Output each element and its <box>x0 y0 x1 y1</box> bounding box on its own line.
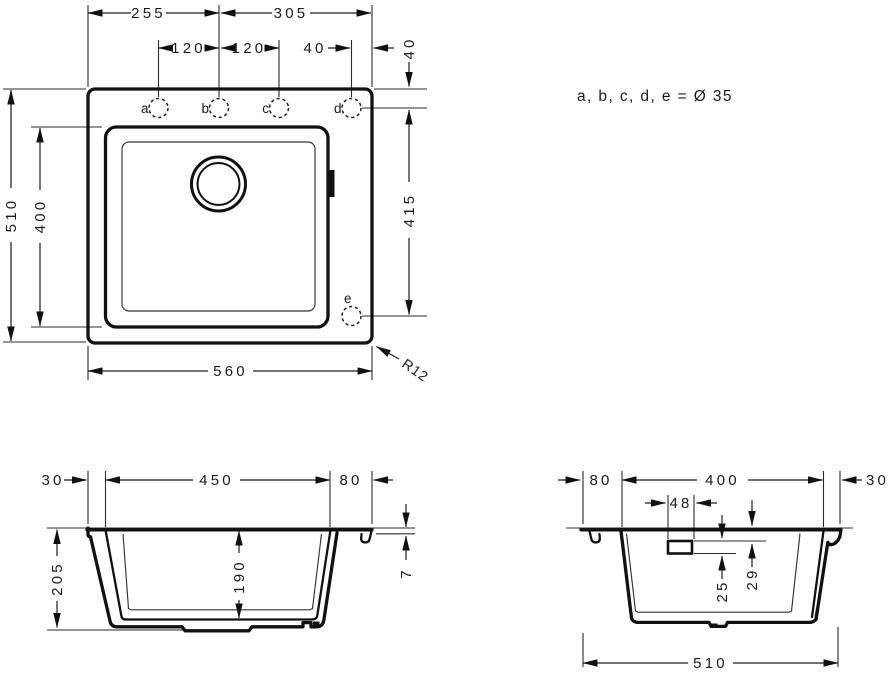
dim-label: 80 <box>339 472 362 489</box>
dim-label: 415 <box>401 193 418 228</box>
dim-label: 120 <box>171 40 206 57</box>
tap-hole-b <box>210 99 229 118</box>
bowl-bottom-edge <box>122 142 315 311</box>
extension-lines <box>566 471 853 667</box>
dim-7: 7 <box>398 504 415 579</box>
bowl-outer-profile <box>88 528 337 631</box>
extension-lines <box>3 5 427 380</box>
extension-lines <box>47 471 415 630</box>
dim-label: 400 <box>32 199 49 234</box>
dim-label: 305 <box>274 5 309 22</box>
dim-29: 29 <box>744 500 761 591</box>
leader-line <box>377 347 400 360</box>
technical-drawing-page: a b c d e 255 305 120 120 <box>0 0 893 675</box>
dim-510-section: 510 <box>583 655 838 672</box>
top-view: a b c d e 255 305 120 120 <box>3 5 432 385</box>
dim-120-bc: 120 <box>221 40 279 57</box>
side-section-view: 80 400 30 48 25 29 <box>558 471 889 672</box>
dim-label: 510 <box>3 198 20 233</box>
section-profile <box>87 528 372 631</box>
drain-stub <box>711 624 718 629</box>
radius-label: R12 <box>399 355 432 385</box>
dim-label: 80 <box>589 472 612 489</box>
tap-hole-e <box>342 307 361 326</box>
dim-80-right: 80 <box>339 472 393 489</box>
rim-edge-hook <box>590 531 600 542</box>
hole-label-e: e <box>344 291 352 306</box>
sink-dimension-drawing: a b c d e 255 305 120 120 <box>0 0 893 675</box>
bowl-inner-edge-line <box>123 534 322 610</box>
drain-stub <box>313 622 320 627</box>
dim-400: 400 <box>32 128 49 326</box>
overflow-opening <box>668 541 692 554</box>
dim-48: 48 <box>645 495 717 512</box>
dim-label: 400 <box>705 472 740 489</box>
drain-inner-circle <box>198 163 240 205</box>
dim-80-back: 80 <box>558 472 613 489</box>
bowl-inner-profile <box>106 530 331 620</box>
dim-label: 255 <box>131 5 166 22</box>
dim-400-section: 400 <box>622 472 823 489</box>
dim-label: 510 <box>693 655 728 672</box>
dim-label: 7 <box>398 567 415 579</box>
tap-hole-c <box>270 99 289 118</box>
dim-190: 190 <box>231 531 248 618</box>
hole-label-d: d <box>334 101 342 116</box>
overflow-slot <box>327 170 335 197</box>
hole-label-b: b <box>201 101 209 116</box>
dim-560: 560 <box>88 363 372 380</box>
dim-label: 560 <box>213 363 248 380</box>
dim-label: 120 <box>232 40 267 57</box>
tap-hole-a <box>149 99 168 118</box>
rim-edge-hook <box>361 531 371 542</box>
dim-label: 30 <box>866 472 889 489</box>
hole-label-a: a <box>141 101 149 116</box>
dim-120-ab: 120 <box>159 40 220 57</box>
dim-30-front: 30 <box>842 472 889 489</box>
dim-510: 510 <box>3 90 20 341</box>
dim-label: 190 <box>231 559 248 594</box>
dim-415: 415 <box>401 110 418 315</box>
dim-label: 40 <box>303 40 326 57</box>
drain-outer-circle <box>192 157 246 211</box>
section-profile <box>581 529 841 628</box>
corner-radius-callout: R12 <box>377 347 432 385</box>
dim-40-vertical: 40 <box>401 36 418 86</box>
dim-30-left: 30 <box>41 472 86 489</box>
dim-label: 40 <box>401 36 418 59</box>
dim-40-horizontal: 40 <box>303 40 394 57</box>
dim-450: 450 <box>106 472 331 489</box>
dim-305: 305 <box>221 5 371 22</box>
dim-label: 48 <box>669 495 692 512</box>
dim-label: 25 <box>714 579 731 602</box>
front-lip-profile <box>816 529 841 620</box>
dim-label: 30 <box>41 472 64 489</box>
hole-label-c: c <box>262 101 269 116</box>
dim-205: 205 <box>49 530 66 628</box>
dim-label: 450 <box>199 472 234 489</box>
tap-hole-d <box>342 99 361 118</box>
holes-diameter-note: a, b, c, d, e = Ø 35 <box>577 88 733 105</box>
front-section-view: 30 450 80 205 190 7 <box>41 471 415 631</box>
dim-label: 205 <box>49 561 66 596</box>
dim-label: 29 <box>744 567 761 590</box>
dim-255: 255 <box>88 5 219 22</box>
